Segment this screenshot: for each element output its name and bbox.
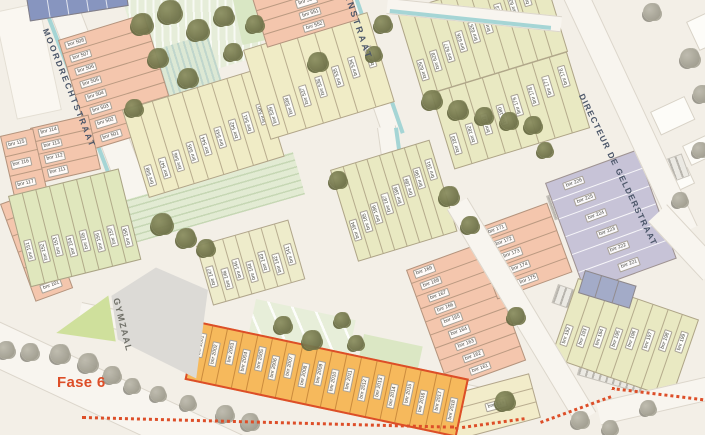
lot-label: bnr 151 — [23, 239, 36, 262]
tree-icon — [507, 307, 525, 325]
existing-tree-icon — [124, 378, 140, 394]
tree-icon — [187, 19, 209, 41]
lot-label: bnr 2003 — [224, 340, 237, 366]
tree-icon — [461, 216, 479, 234]
lot-label: bnr 2012 — [356, 376, 369, 402]
lot-label: bnr 2013 — [372, 374, 385, 400]
lot-label: bnr 536 — [314, 75, 328, 98]
lot-label: bnr 2011 — [343, 367, 356, 393]
phase-label: Fase 6 — [57, 374, 106, 391]
lot-label: bnr 2004 — [238, 348, 251, 374]
lot-label: bnr 621 — [519, 0, 533, 7]
lot-label: bnr 548 — [144, 164, 158, 187]
existing-tree-icon — [21, 343, 39, 361]
lot-label: bnr 115 — [5, 137, 28, 150]
lot-label: bnr 543 — [213, 126, 227, 149]
lot-label: bnr 538 — [282, 94, 296, 117]
tree-icon — [125, 99, 143, 117]
lot-label: bnr 2006 — [267, 355, 280, 381]
lot-label: bnr 191 — [424, 158, 438, 181]
lot-label: bnr 2016 — [416, 390, 429, 416]
tree-icon — [197, 239, 215, 257]
tree-icon — [158, 0, 182, 24]
tree-icon — [302, 330, 322, 350]
lot-label: bnr 157 — [105, 224, 118, 247]
lot-label: bnr 539 — [266, 103, 280, 126]
tree-icon — [500, 112, 518, 130]
tree-icon — [274, 316, 292, 334]
lot-label: bnr 199 — [674, 330, 689, 353]
tree-icon — [524, 116, 542, 134]
lot-label: bnr 2002 — [208, 342, 221, 368]
lot-label: bnr 156 — [93, 230, 106, 253]
lot-label: bnr 183 — [449, 132, 463, 155]
tree-icon — [214, 6, 234, 26]
lot — [25, 0, 50, 20]
lot-label: bnr 544 — [199, 133, 213, 156]
tree-icon — [448, 100, 468, 120]
lot-label: bnr 117 — [14, 177, 37, 190]
lot-label: bnr 2017 — [432, 388, 445, 414]
existing-tree-icon — [103, 366, 121, 384]
lot-label: bnr 535 — [331, 65, 345, 88]
existing-tree-icon — [150, 386, 166, 402]
lot-label: bnr 547 — [157, 156, 171, 179]
lot-label: bnr 182 — [464, 122, 478, 145]
site-plan-map: GYMZAAL MOORDRECHTSTRAAT BENSTRAAT DIREC… — [0, 0, 705, 435]
existing-tree-icon — [693, 85, 705, 103]
existing-tree-icon — [78, 353, 98, 373]
lot-label: bnr 537 — [298, 84, 312, 107]
tree-icon — [131, 13, 153, 35]
lot-label: bnr 2010 — [327, 369, 340, 395]
existing-tree-icon — [643, 3, 661, 21]
tree-icon — [422, 90, 442, 110]
tree-icon — [348, 335, 364, 351]
lot-label: bnr 546 — [171, 149, 185, 172]
lot-label: bnr 2009 — [313, 360, 326, 386]
existing-tree-icon — [602, 420, 618, 435]
lot-label: bnr 2014 — [386, 383, 399, 409]
tree-icon — [374, 15, 392, 33]
lot-label: bnr 534 — [347, 55, 361, 78]
lot-label: bnr 158 — [121, 225, 134, 248]
lot-label: bnr 2018 — [446, 397, 459, 423]
existing-tree-icon — [180, 395, 196, 411]
lot-label: bnr 2015 — [402, 381, 415, 407]
tree-icon — [495, 391, 515, 411]
lot-label: bnr 177 — [541, 74, 555, 97]
lot-label: bnr 116 — [10, 157, 33, 170]
tree-icon — [308, 52, 328, 72]
lot-label: bnr 176 — [557, 64, 571, 87]
existing-tree-icon — [640, 400, 656, 416]
lot-label: bnr 2007 — [283, 353, 296, 379]
existing-tree-icon — [692, 142, 705, 158]
lot-label: bnr 545 — [185, 141, 199, 164]
lot-label: bnr 2005 — [254, 346, 267, 372]
tree-icon — [334, 312, 350, 328]
lot-label: bnr 2008 — [297, 362, 310, 388]
tree-icon — [176, 228, 196, 248]
lot-label: bnr 221 — [618, 257, 641, 272]
existing-tree-icon — [672, 192, 688, 208]
lot-label: bnr 141 — [283, 243, 297, 266]
lot-label: bnr 542 — [227, 118, 241, 141]
existing-building — [686, 12, 705, 51]
lot-label: bnr 552 — [303, 19, 326, 33]
tree-icon — [439, 186, 459, 206]
lot-label: bnr 225 — [573, 192, 596, 207]
lot-label: bnr 541 — [241, 110, 255, 133]
lot-label: bnr 152 — [37, 240, 50, 263]
lot-label: bnr 224 — [584, 208, 607, 223]
block-184-191: bnr 184bnr 185bnr 186bnr 187bnr 188bnr 1… — [330, 140, 458, 262]
park-triangle — [55, 294, 117, 344]
lot-label: bnr 501 — [99, 129, 122, 143]
lot-label: bnr 153 — [50, 234, 63, 257]
lot-label: bnr 161 — [468, 361, 491, 376]
lot-label: bnr 155 — [78, 229, 91, 252]
tree-icon — [475, 107, 493, 125]
tree-icon — [537, 142, 553, 158]
existing-building — [650, 96, 695, 136]
tree-icon — [246, 15, 264, 33]
tree-icon — [151, 213, 173, 235]
tree-icon — [224, 43, 242, 61]
existing-tree-icon — [50, 344, 70, 364]
lot-label: bnr 222 — [606, 240, 629, 255]
tree-icon — [178, 68, 198, 88]
lot-label: bnr 154 — [65, 235, 78, 258]
existing-tree-icon — [571, 411, 589, 429]
lot-label: bnr 223 — [595, 224, 618, 239]
lot-label: bnr 178 — [526, 84, 540, 107]
block-141-147: bnr 147bnr 146bnr 145bnr 144bnr 143bnr 1… — [196, 220, 305, 306]
tree-icon — [148, 48, 168, 68]
lot-label: bnr 226 — [562, 175, 585, 190]
tree-icon — [329, 171, 347, 189]
existing-tree-icon — [680, 48, 700, 68]
lot-label: bnr 111 — [47, 165, 70, 178]
